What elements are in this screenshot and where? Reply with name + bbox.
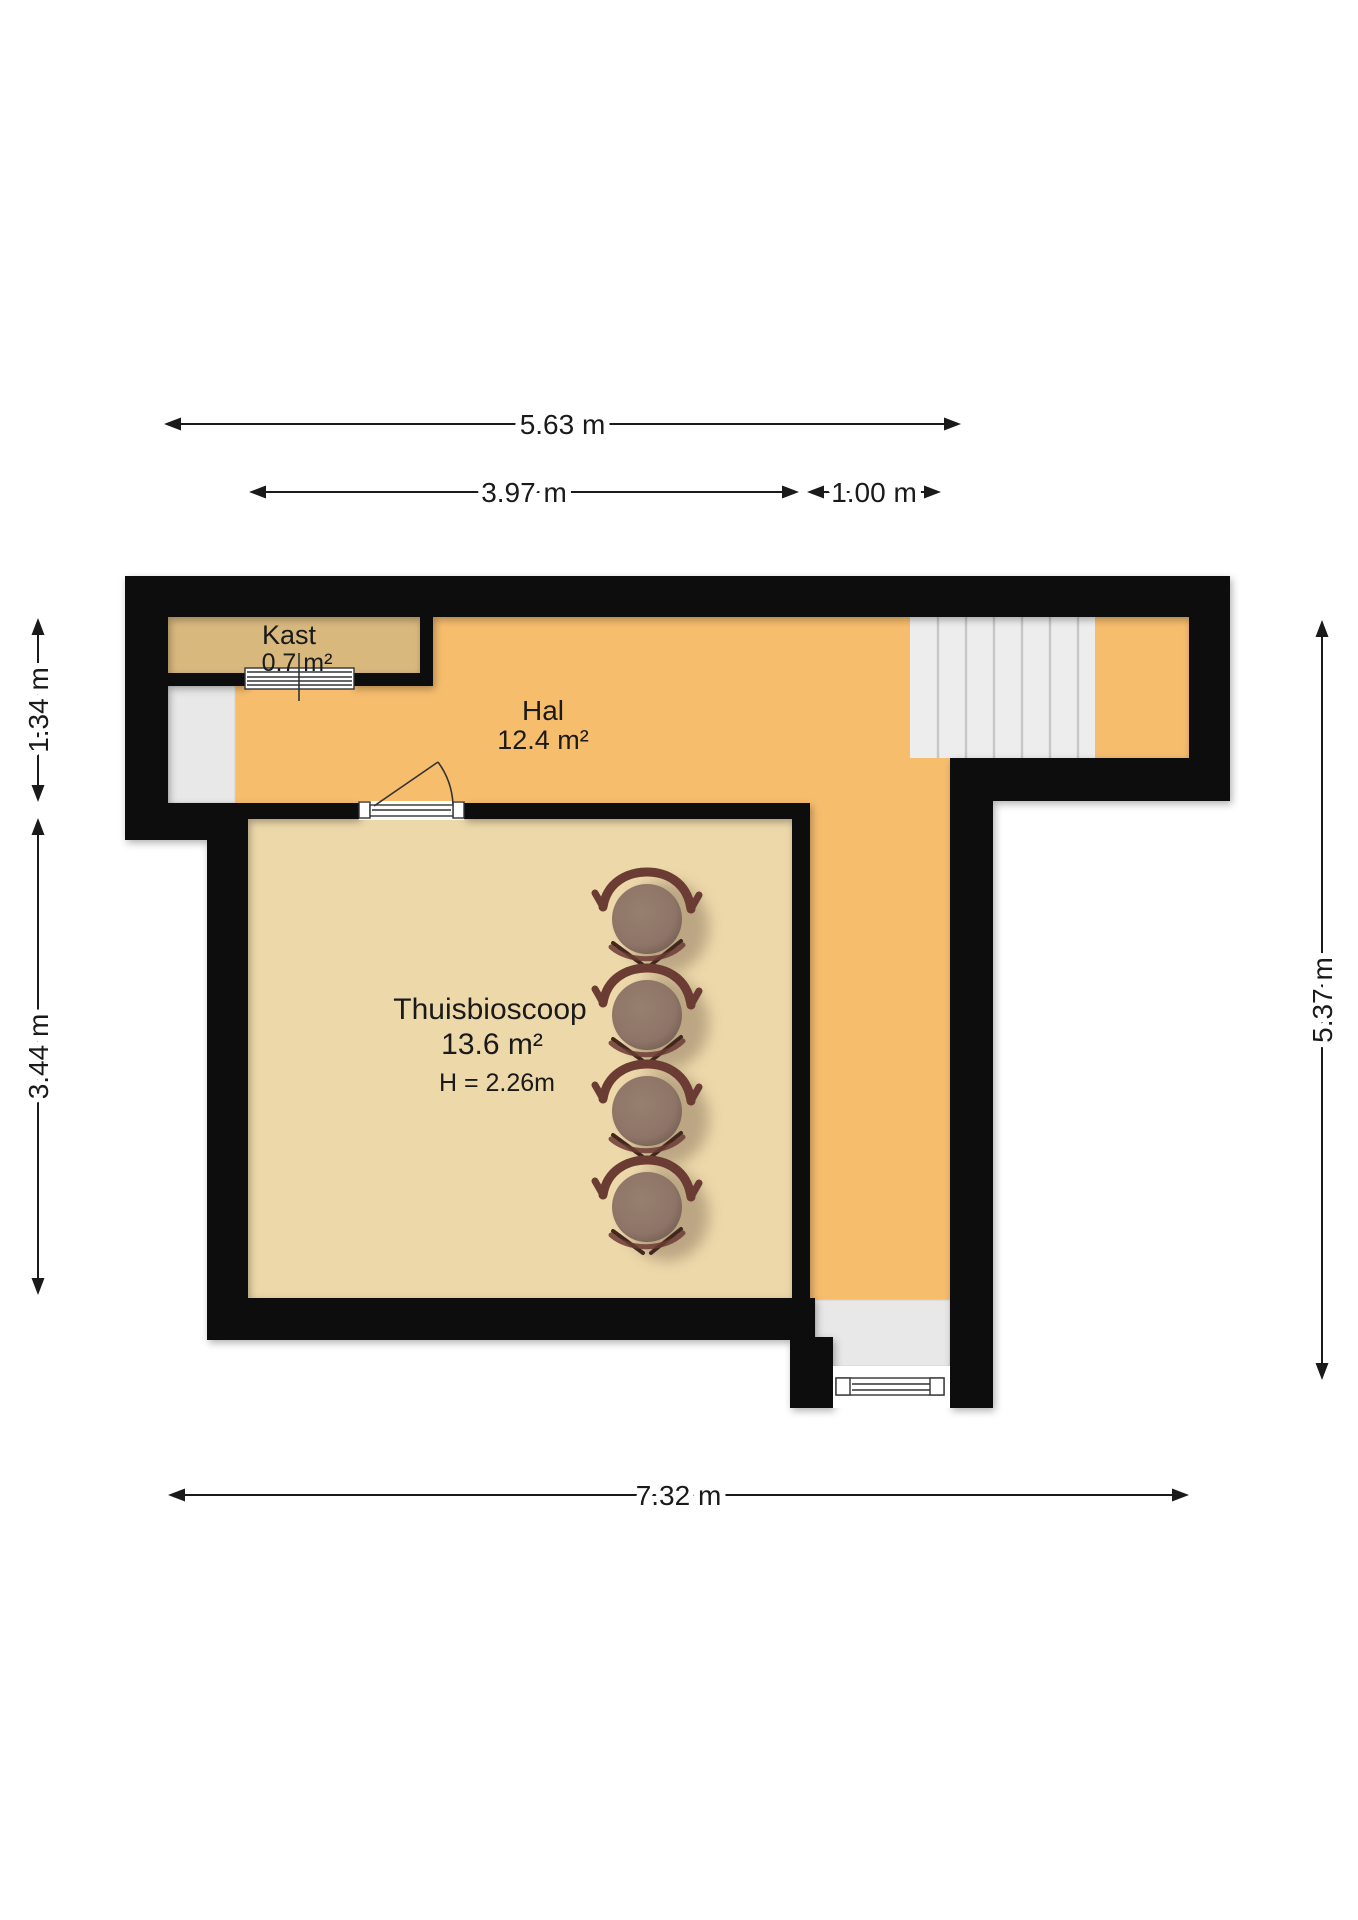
arrowhead-up-icon — [32, 618, 45, 635]
wall-bottom-door-stub — [790, 1337, 833, 1408]
dimension-label: 3.44 m — [23, 1014, 54, 1100]
wall-room-right — [792, 803, 810, 1300]
wall-corridor-right — [950, 758, 993, 1408]
arrowhead-right-icon — [782, 486, 799, 499]
arrowhead-down-icon — [32, 1278, 45, 1295]
kast-area: 0.7 m² — [262, 649, 333, 677]
dimension-room-height: 3.44 m — [23, 818, 54, 1295]
wall-bottom — [207, 1298, 815, 1340]
dimension-label: 1.00 m — [831, 477, 917, 508]
arrowhead-down-icon — [32, 785, 45, 802]
dimension-label: 1.34 m — [23, 667, 54, 753]
thuisbioscoop-area: 13.6 m² — [441, 1028, 543, 1061]
floor-plan-page: Kast 0.7 m² Hal 12.4 m² Thuisbioscoop 13… — [0, 0, 1358, 1920]
arrowhead-right-icon — [1172, 1489, 1189, 1502]
wall-kast-bottom-right-seg — [352, 673, 433, 686]
entry-recess — [168, 686, 235, 803]
staircase — [910, 617, 1095, 758]
hal-floor-corridor — [810, 803, 950, 1300]
wall-right-outer — [1189, 576, 1230, 801]
dimension-right-height: 5.37 m — [1307, 620, 1338, 1380]
arrowhead-left-icon — [249, 486, 266, 499]
bottom-vestibule — [815, 1300, 950, 1366]
door-jamb-right — [453, 802, 464, 818]
arrowhead-right-icon — [944, 418, 961, 431]
dimension-label: 5.63 m — [520, 409, 606, 440]
dimension-corridor-width: 1.00 m — [807, 477, 941, 508]
wall-left-upper — [125, 576, 168, 840]
arrowhead-left-icon — [807, 486, 824, 499]
wall-room-top-left-seg — [248, 803, 359, 819]
wall-room-left — [207, 803, 248, 1340]
dimension-room-width: 3.97 m — [249, 477, 799, 508]
thuisbioscoop-ceiling-height: H = 2.26m — [439, 1069, 555, 1097]
arrowhead-left-icon — [164, 418, 181, 431]
door-jamb-left — [359, 802, 370, 818]
dimension-label: 7.32 m — [636, 1480, 722, 1511]
arrowhead-left-icon — [168, 1489, 185, 1502]
dimension-total-width: 7.32 m — [168, 1480, 1189, 1511]
kast-name: Kast — [262, 620, 317, 650]
arrowhead-up-icon — [32, 818, 45, 835]
wall-kast-right — [420, 617, 433, 673]
arrowhead-right-icon — [924, 486, 941, 499]
wall-kast-bottom-left-seg — [168, 673, 247, 686]
hal-area: 12.4 m² — [497, 725, 589, 755]
arrowhead-up-icon — [1316, 620, 1329, 637]
door-jamb-left — [836, 1378, 850, 1395]
dimension-upper-left-height: 1.34 m — [23, 618, 54, 802]
arrowhead-down-icon — [1316, 1363, 1329, 1380]
thuisbioscoop-name: Thuisbioscoop — [393, 993, 586, 1026]
door-jamb-right — [930, 1378, 944, 1395]
wall-top — [125, 576, 1230, 617]
dimension-label: 3.97 m — [481, 477, 567, 508]
hal-name: Hal — [522, 695, 564, 726]
wall-room-top-right-seg — [464, 803, 792, 819]
dimension-label: 5.37 m — [1307, 957, 1338, 1043]
dimension-top-width: 5.63 m — [164, 409, 961, 440]
door-slab — [836, 1378, 944, 1395]
bottom-exterior-door — [833, 1366, 950, 1408]
floor-plan-svg: Kast 0.7 m² Hal 12.4 m² Thuisbioscoop 13… — [0, 0, 1358, 1920]
